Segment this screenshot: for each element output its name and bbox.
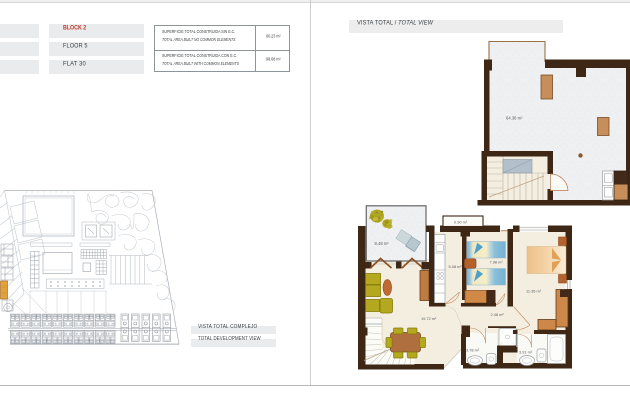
svg-text:11.35 m²: 11.35 m²: [526, 289, 542, 294]
svg-text:2.48 m²: 2.48 m²: [491, 312, 505, 317]
svg-text:19.72 m²: 19.72 m²: [421, 316, 437, 321]
svg-text:7.98 m²: 7.98 m²: [490, 260, 504, 265]
svg-text:8.48 m²: 8.48 m²: [375, 241, 390, 246]
svg-text:5.08 m²: 5.08 m²: [449, 264, 463, 269]
svg-text:3.78 m²: 3.78 m²: [466, 348, 480, 353]
svg-text:64.36 m²: 64.36 m²: [506, 116, 523, 121]
svg-text:3.91 m²: 3.91 m²: [519, 350, 533, 355]
svg-text:0.90 m²: 0.90 m²: [454, 220, 468, 225]
